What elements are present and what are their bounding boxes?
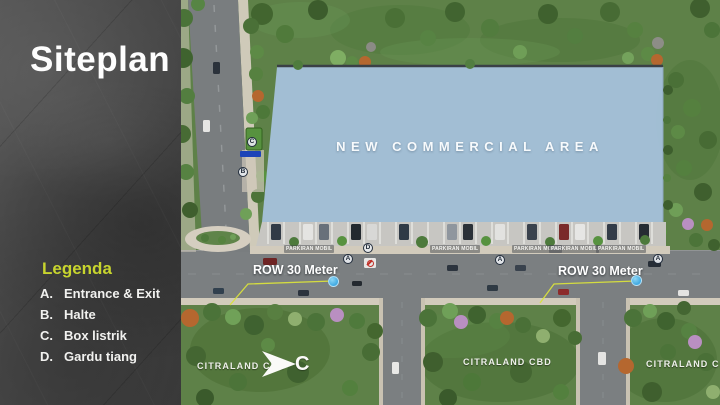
sidebar: Siteplan Legenda A. Entrance & Exit B. H…: [0, 0, 181, 405]
commercial-area-label: NEW COMMERCIAL AREA: [277, 139, 663, 154]
map-marker-box-listrik: C: [247, 137, 257, 147]
parking-label: PARKIRAN MOBIL: [430, 245, 480, 253]
row-meter-label: ROW 30 Meter: [558, 264, 643, 278]
legend-item-label: Halte: [64, 307, 160, 322]
legend-item-label: Entrance & Exit: [64, 286, 160, 301]
no-entry-icon: [367, 260, 374, 267]
junction-island: [185, 226, 251, 252]
map-marker-halte: B: [238, 167, 248, 177]
map-marker-entrance: A: [653, 254, 663, 264]
page-title: Siteplan: [30, 40, 170, 80]
legend-item-key: B.: [40, 307, 64, 322]
map-marker-entrance: A: [495, 255, 505, 265]
legend: Legenda A. Entrance & Exit B. Halte C. B…: [40, 259, 160, 364]
legend-item-key: C.: [40, 328, 64, 343]
legend-item-key: D.: [40, 349, 64, 364]
district-label: CITRALAND CBD: [646, 359, 720, 369]
parking-label: PARKIRAN MOBIL: [549, 245, 599, 253]
parking-label: PARKIRAN MOBIL: [596, 245, 646, 253]
row-meter-label: ROW 30 Meter: [253, 263, 338, 277]
row-measure-dot: [631, 275, 642, 286]
citraland-logo-arrow-icon: [260, 349, 320, 381]
siteplan-slide: Siteplan Legenda A. Entrance & Exit B. H…: [0, 0, 720, 405]
no-entry-sign: [364, 258, 376, 268]
legend-heading: Legenda: [42, 259, 160, 279]
citraland-logo-letter: C: [295, 353, 309, 376]
row-measure-dot: [328, 276, 339, 287]
legend-item-label: Box listrik: [64, 328, 160, 343]
map-marker-gardu: D: [363, 243, 373, 253]
legend-item-key: A.: [40, 286, 64, 301]
map-marker-entrance: A: [343, 254, 353, 264]
district-label: CITRALAND CBD: [463, 357, 552, 367]
legend-item-label: Gardu tiang: [64, 349, 160, 364]
parking-label: PARKIRAN MOBIL: [284, 245, 334, 253]
